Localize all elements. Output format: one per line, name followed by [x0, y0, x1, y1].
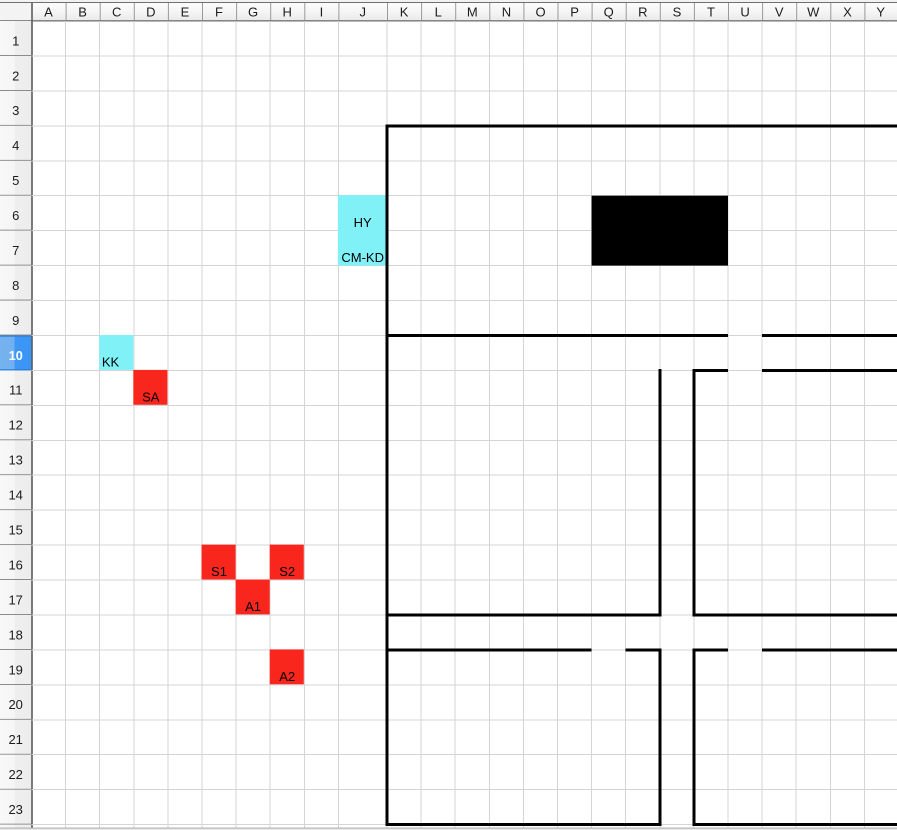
svg-text:SA: SA: [142, 390, 160, 405]
svg-text:19: 19: [8, 662, 22, 677]
svg-text:N: N: [502, 4, 511, 19]
svg-text:D: D: [146, 4, 155, 19]
svg-text:18: 18: [8, 627, 22, 642]
svg-text:M: M: [467, 4, 478, 19]
svg-text:V: V: [775, 4, 784, 19]
svg-text:G: G: [248, 4, 258, 19]
svg-text:8: 8: [12, 278, 19, 293]
svg-text:W: W: [807, 4, 820, 19]
svg-text:S: S: [673, 4, 682, 19]
svg-text:20: 20: [8, 697, 22, 712]
svg-text:23: 23: [8, 802, 22, 817]
svg-text:B: B: [78, 4, 87, 19]
svg-text:R: R: [638, 4, 647, 19]
svg-text:15: 15: [8, 523, 22, 538]
svg-text:13: 13: [8, 453, 22, 468]
svg-text:H: H: [283, 4, 292, 19]
svg-text:E: E: [181, 4, 190, 19]
svg-text:16: 16: [8, 557, 22, 572]
svg-text:9: 9: [12, 313, 19, 328]
svg-text:3: 3: [12, 103, 19, 118]
svg-text:A: A: [44, 4, 53, 19]
svg-text:O: O: [535, 4, 545, 19]
svg-text:Q: Q: [604, 4, 614, 19]
svg-text:U: U: [740, 4, 749, 19]
svg-text:C: C: [112, 4, 121, 19]
svg-text:S1: S1: [211, 564, 227, 579]
svg-text:I: I: [320, 4, 324, 19]
svg-text:2: 2: [12, 68, 19, 83]
svg-text:12: 12: [8, 418, 22, 433]
svg-text:1: 1: [12, 33, 19, 48]
svg-text:F: F: [215, 4, 223, 19]
svg-text:17: 17: [8, 592, 22, 607]
svg-text:HY: HY: [354, 215, 372, 230]
svg-text:L: L: [435, 4, 442, 19]
svg-text:A2: A2: [279, 669, 295, 684]
svg-text:S2: S2: [279, 564, 295, 579]
svg-text:7: 7: [12, 243, 19, 258]
svg-text:21: 21: [8, 732, 22, 747]
svg-text:K: K: [400, 4, 409, 19]
svg-text:P: P: [570, 4, 579, 19]
svg-text:11: 11: [9, 383, 23, 398]
svg-text:Y: Y: [876, 4, 885, 19]
svg-text:T: T: [707, 4, 715, 19]
svg-text:14: 14: [8, 488, 22, 503]
svg-text:6: 6: [12, 208, 19, 223]
svg-text:KK: KK: [102, 355, 120, 370]
svg-text:A1: A1: [245, 599, 261, 614]
svg-text:X: X: [843, 4, 852, 19]
svg-text:4: 4: [12, 138, 19, 153]
svg-text:J: J: [359, 4, 366, 19]
svg-text:10: 10: [9, 349, 23, 363]
svg-text:CM-KD: CM-KD: [341, 250, 384, 265]
svg-text:5: 5: [12, 173, 19, 188]
svg-text:22: 22: [8, 767, 22, 782]
